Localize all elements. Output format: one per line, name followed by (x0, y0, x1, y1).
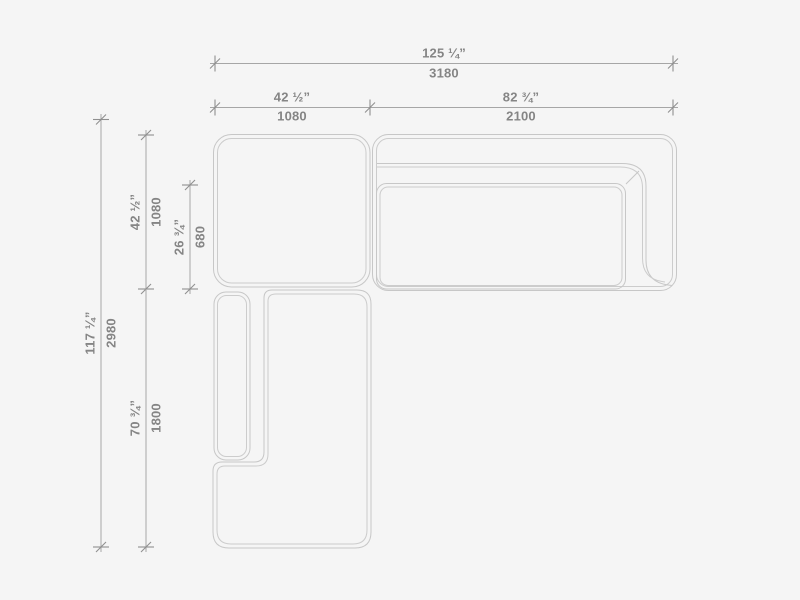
dim-label-left-inner-inches: 26 ¾” (173, 219, 186, 255)
sofa-seat-cushion-inner (380, 187, 622, 286)
dim-label-top-right-mm: 2100 (506, 110, 536, 123)
sofa-inner-shell (377, 139, 673, 287)
dim-label-top-total-inches: 125 ¼” (422, 47, 466, 60)
chaise-bolster-inner (218, 296, 247, 457)
dim-label-top-right-inches: 82 ¾” (503, 91, 539, 104)
dim-label-left-total-mm: 2980 (105, 318, 118, 348)
dim-label-left-total-inches: 117 ¼” (84, 311, 97, 354)
dim-label-left-inner-mm: 680 (194, 226, 207, 248)
dim-label-left-upper-inches: 42 ½” (129, 194, 142, 230)
sofa-seat-cushion (377, 184, 626, 290)
module-chaise-unit (213, 290, 371, 548)
drawing-linework (0, 0, 800, 600)
dim-label-top-left-mm: 1080 (277, 110, 307, 123)
module-sofa-unit (373, 135, 677, 291)
dim-label-left-upper-mm: 1080 (150, 197, 163, 227)
chaise-seat-outline-inner (217, 294, 367, 544)
technical-drawing-canvas: 125 ¼” 3180 42 ½” 1080 82 ¾” 2100 117 ¼”… (0, 0, 800, 600)
dim-label-top-left-inches: 42 ½” (274, 91, 310, 104)
dim-label-left-lower-inches: 70 ¾” (129, 400, 142, 436)
sofa-corner-diagonal-seam (626, 171, 639, 184)
dim-label-left-lower-mm: 1800 (150, 403, 163, 433)
sofa-outer-shell (373, 135, 677, 291)
module-corner-unit (214, 135, 371, 288)
chaise-bolster (214, 292, 250, 460)
chaise-seat-outline (213, 290, 371, 548)
dim-label-top-total-mm: 3180 (429, 67, 459, 80)
